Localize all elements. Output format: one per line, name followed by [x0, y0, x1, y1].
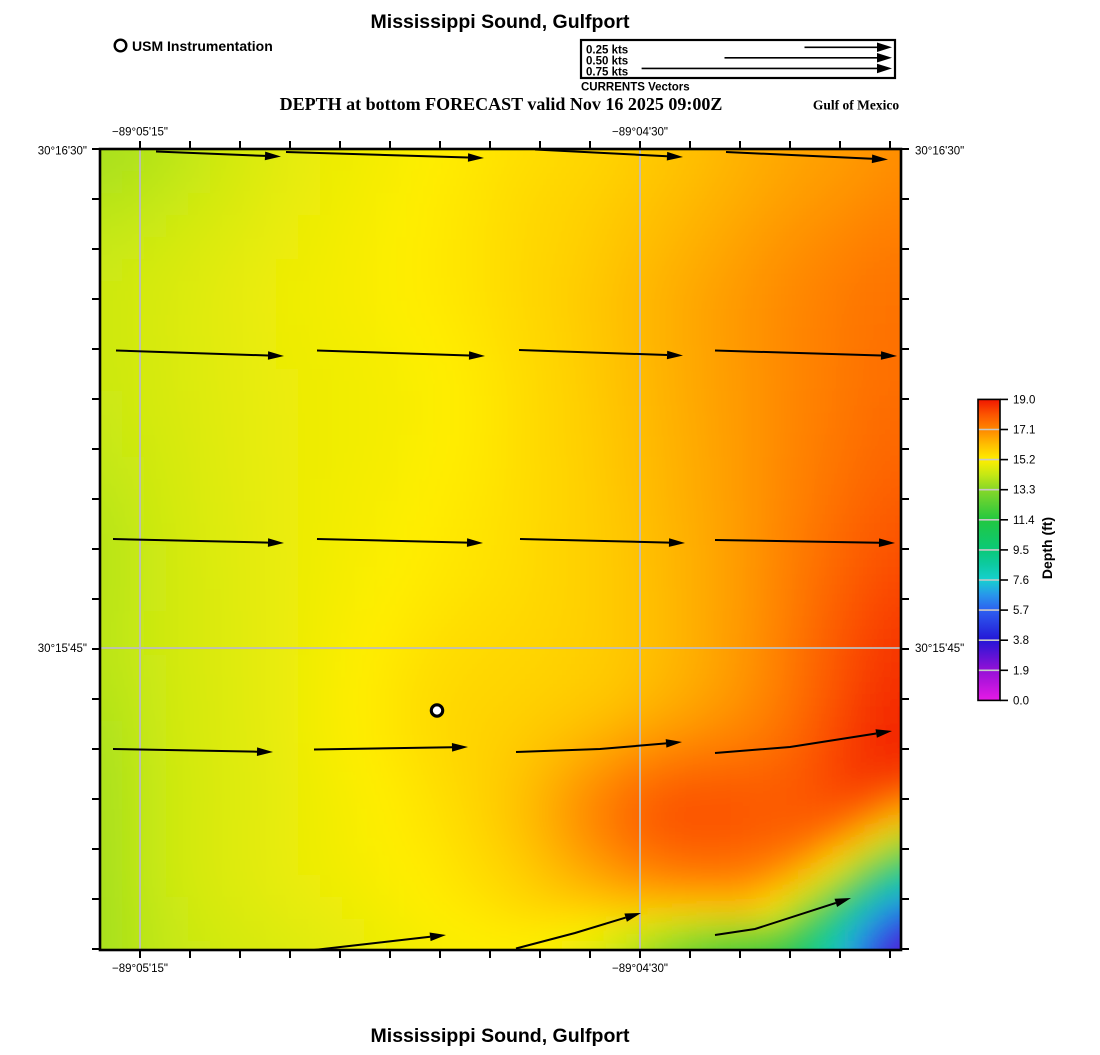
svg-text:17.1: 17.1: [1013, 425, 1035, 437]
svg-text:30°15'45": 30°15'45": [38, 643, 87, 655]
svg-text:Depth (ft): Depth (ft): [1039, 517, 1055, 579]
svg-text:30°16'30": 30°16'30": [38, 146, 87, 158]
svg-text:1.9: 1.9: [1013, 665, 1029, 677]
svg-text:CURRENTS Vectors: CURRENTS Vectors: [581, 82, 690, 94]
svg-text:30°15'45": 30°15'45": [915, 643, 964, 655]
svg-text:13.3: 13.3: [1013, 485, 1035, 497]
svg-text:Mississippi Sound, Gulfport: Mississippi Sound, Gulfport: [371, 1025, 630, 1047]
svg-text:−89°05'15": −89°05'15": [112, 963, 168, 975]
svg-text:USM Instrumentation: USM Instrumentation: [132, 38, 273, 54]
svg-text:Gulf of Mexico: Gulf of Mexico: [813, 98, 899, 113]
svg-text:19.0: 19.0: [1013, 394, 1035, 406]
svg-text:30°16'30": 30°16'30": [915, 146, 964, 158]
svg-text:−89°05'15": −89°05'15": [112, 127, 168, 139]
svg-text:Mississippi Sound, Gulfport: Mississippi Sound, Gulfport: [371, 11, 630, 33]
svg-text:7.6: 7.6: [1013, 575, 1029, 587]
svg-text:11.4: 11.4: [1013, 515, 1035, 527]
svg-text:9.5: 9.5: [1013, 545, 1029, 557]
svg-text:3.8: 3.8: [1013, 635, 1029, 647]
svg-text:−89°04'30": −89°04'30": [612, 127, 668, 139]
svg-text:−89°04'30": −89°04'30": [612, 963, 668, 975]
svg-text:0.0: 0.0: [1013, 695, 1029, 707]
svg-text:DEPTH at bottom FORECAST valid: DEPTH at bottom FORECAST valid Nov 16 20…: [280, 94, 723, 114]
svg-text:0.75 kts: 0.75 kts: [586, 66, 628, 78]
svg-text:5.7: 5.7: [1013, 605, 1029, 617]
svg-text:15.2: 15.2: [1013, 455, 1035, 467]
